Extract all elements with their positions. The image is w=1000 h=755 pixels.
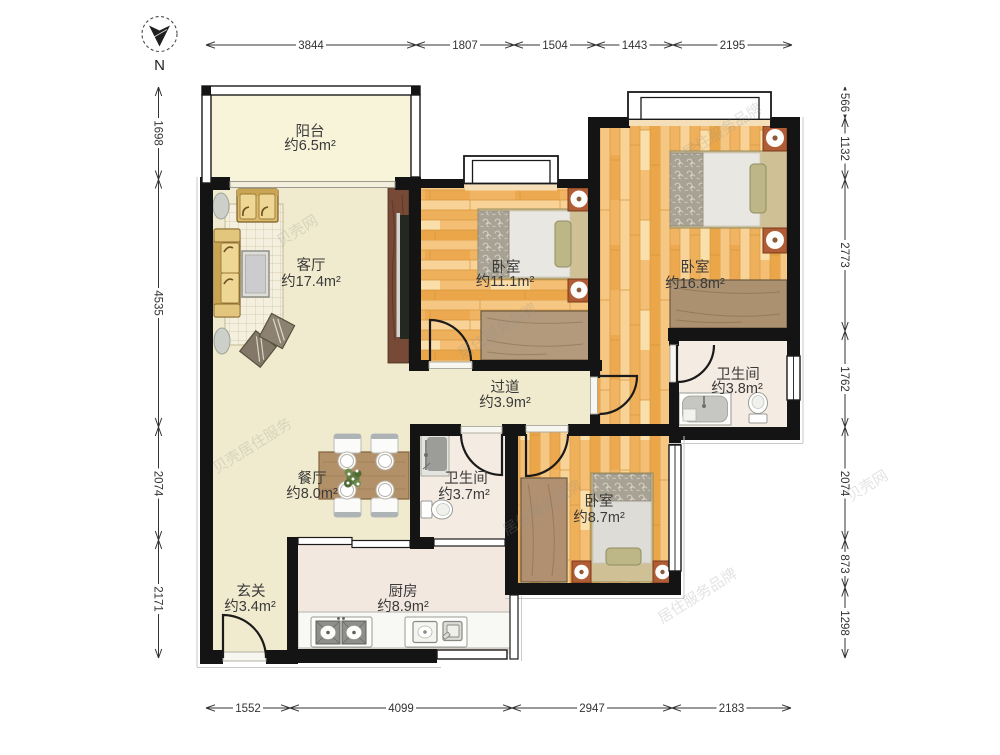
svg-text:厨房: 厨房 [389,583,418,600]
svg-text:约17.4m²: 约17.4m² [281,273,341,290]
svg-text:约16.8m²: 约16.8m² [665,275,725,292]
svg-text:客厅: 客厅 [297,257,326,274]
svg-text:卧室: 卧室 [585,493,614,510]
svg-text:566: 566 [838,93,850,112]
svg-text:约3.7m²: 约3.7m² [438,486,490,503]
svg-text:约3.8m²: 约3.8m² [711,380,763,397]
svg-text:1552: 1552 [235,703,261,715]
svg-text:2947: 2947 [579,703,605,715]
svg-text:2074: 2074 [152,471,164,497]
svg-text:2773: 2773 [838,242,850,268]
svg-text:1443: 1443 [622,40,648,52]
svg-text:1698: 1698 [152,120,164,146]
svg-text:4535: 4535 [152,290,164,316]
svg-text:约8.7m²: 约8.7m² [573,509,625,526]
svg-text:约3.9m²: 约3.9m² [479,394,531,411]
svg-text:873: 873 [838,554,850,573]
svg-text:1132: 1132 [838,136,850,161]
svg-text:约3.4m²: 约3.4m² [224,598,276,615]
svg-text:1298: 1298 [838,610,850,636]
svg-text:1807: 1807 [452,40,478,52]
svg-text:约8.0m²: 约8.0m² [286,485,338,502]
svg-text:1504: 1504 [542,40,568,52]
svg-text:过道: 过道 [491,379,520,396]
svg-text:约11.1m²: 约11.1m² [476,273,535,290]
svg-text:3844: 3844 [298,40,324,52]
svg-text:N: N [154,57,165,74]
svg-text:约6.5m²: 约6.5m² [284,137,336,154]
svg-text:卫生间: 卫生间 [444,470,488,487]
svg-text:玄关: 玄关 [237,583,266,600]
svg-text:约8.9m²: 约8.9m² [377,598,429,615]
svg-text:1762: 1762 [838,366,850,392]
svg-text:餐厅: 餐厅 [298,470,327,487]
svg-text:2195: 2195 [720,40,746,52]
svg-text:4099: 4099 [388,703,414,715]
svg-text:卧室: 卧室 [681,259,710,276]
svg-text:2183: 2183 [719,703,745,715]
svg-text:2171: 2171 [152,586,164,612]
